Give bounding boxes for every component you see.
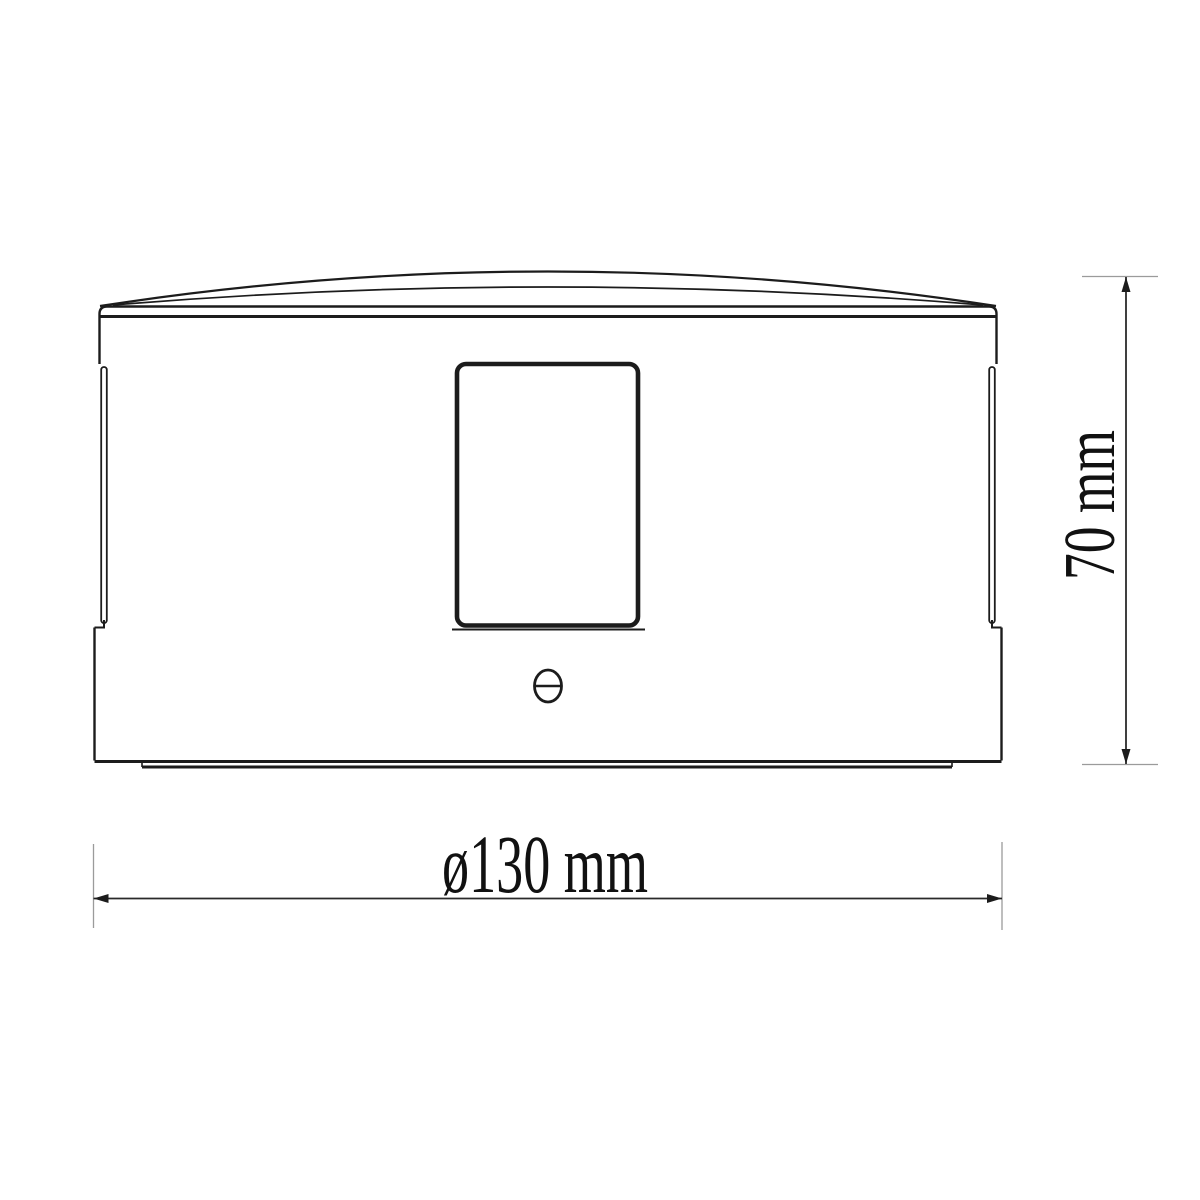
device-body	[95, 272, 1002, 768]
arrowhead-right-icon	[987, 894, 1002, 903]
dome-outer-arc	[100, 272, 996, 307]
left-seam-foot	[95, 620, 105, 628]
height-dimension-label: 70 mm	[1049, 430, 1130, 580]
technical-drawing-canvas: 70 mm ø130 mm	[0, 0, 1200, 1200]
right-seam-foot	[992, 620, 1002, 628]
width-dimension: ø130 mm	[94, 818, 1003, 930]
height-dimension: 70 mm	[1049, 277, 1158, 765]
front-window	[457, 364, 638, 626]
width-dimension-label: ø130 mm	[442, 818, 648, 910]
right-seam	[989, 367, 995, 623]
dome-inner-arc	[113, 287, 983, 305]
dimension-drawing: 70 mm ø130 mm	[0, 0, 1200, 1200]
arrowhead-up-icon	[1122, 277, 1131, 292]
arrowhead-left-icon	[94, 894, 109, 903]
left-seam	[101, 367, 107, 623]
arrowhead-down-icon	[1122, 749, 1131, 764]
